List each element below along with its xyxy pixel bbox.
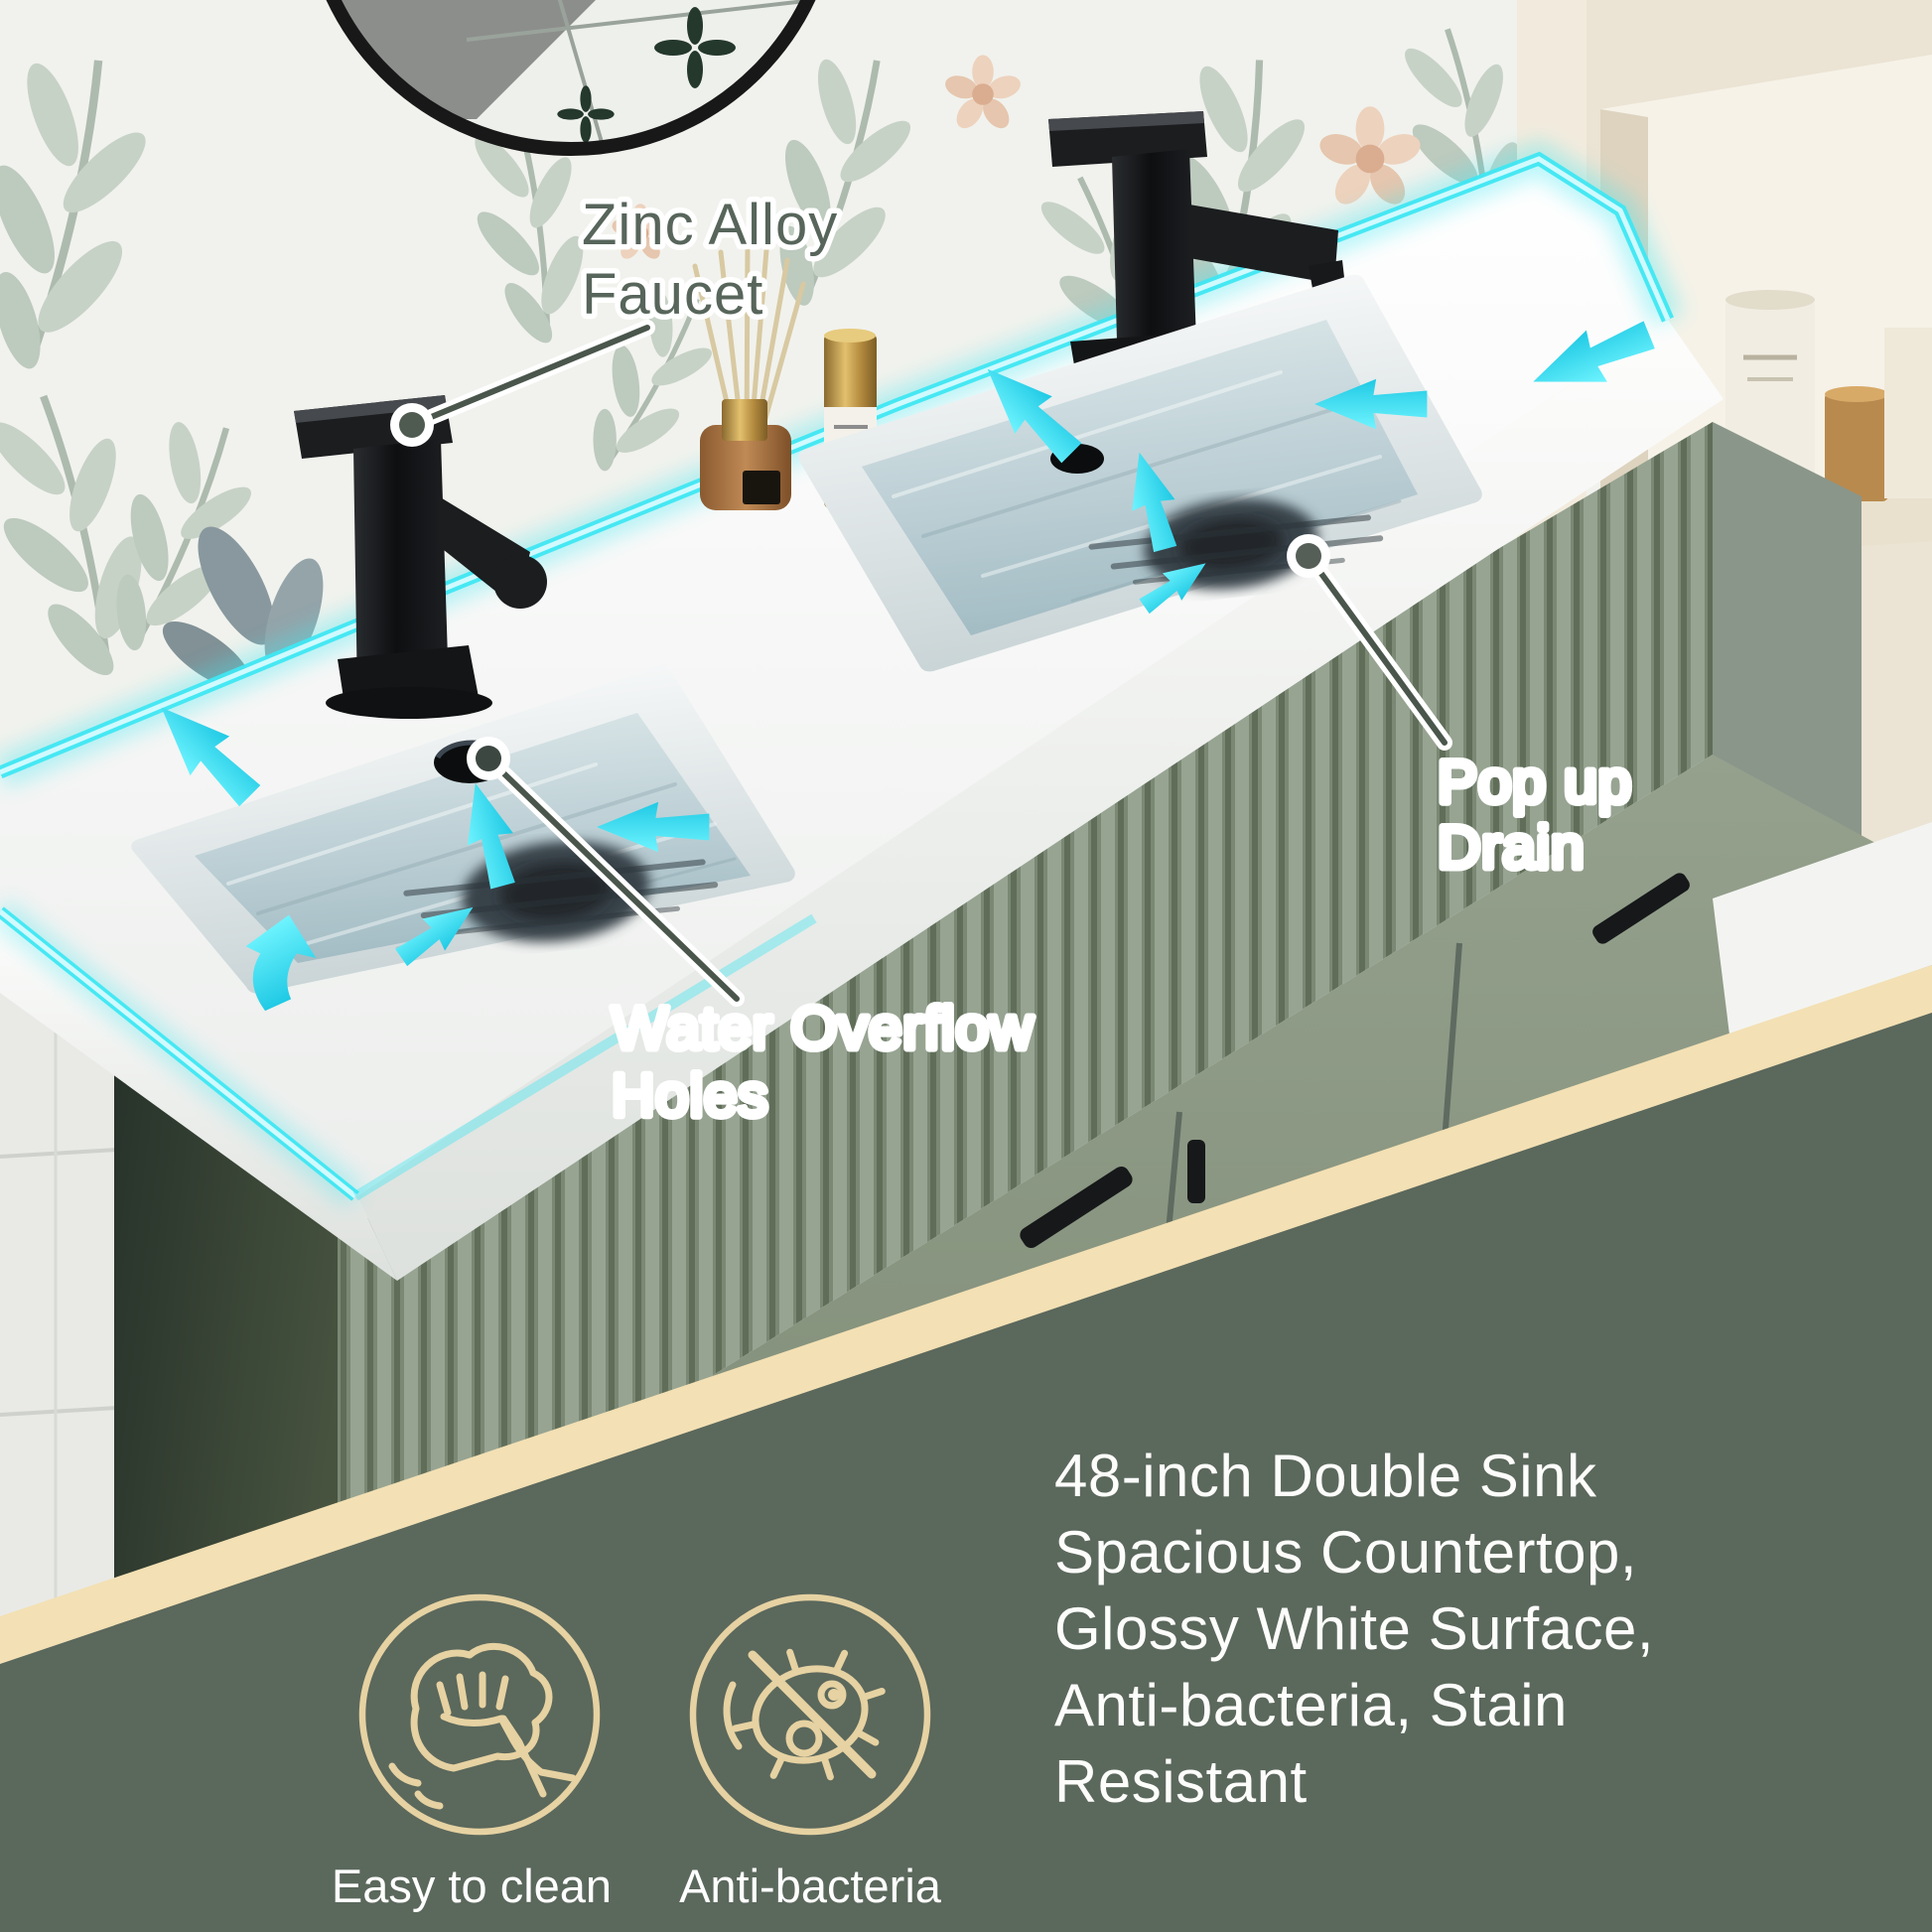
feature-line: Anti-bacteria, Stain: [1054, 1667, 1654, 1743]
callout-dot-overflow: [467, 737, 510, 780]
label-overflow-line2: Holes: [612, 1062, 768, 1129]
feature-line: Resistant: [1054, 1743, 1654, 1820]
callout-dot-faucet: [390, 403, 434, 447]
feature-line: Spacious Countertop,: [1054, 1514, 1654, 1590]
label-overflow-line1: Water Overflow: [612, 995, 1034, 1061]
feature-line: 48-inch Double Sink: [1054, 1438, 1654, 1514]
door-handle: [1187, 1140, 1205, 1203]
feature-description: 48-inch Double Sink Spacious Countertop,…: [1054, 1438, 1654, 1820]
feature-line: Glossy White Surface,: [1054, 1590, 1654, 1667]
label-popup-drain-line2: Drain: [1438, 814, 1585, 881]
badge-caption-anti-bacteria: Anti-bacteria: [602, 1859, 1019, 1913]
label-popup-drain-line1: Pop up: [1438, 749, 1632, 815]
callout-dot-drain: [1287, 534, 1330, 578]
label-zinc-alloy-line1: Zinc Alloy: [582, 193, 838, 257]
label-zinc-alloy-line2: Faucet: [582, 262, 763, 327]
product-feature-image: Zinc Alloy Faucet Pop up Drain Water Ove…: [0, 0, 1932, 1932]
